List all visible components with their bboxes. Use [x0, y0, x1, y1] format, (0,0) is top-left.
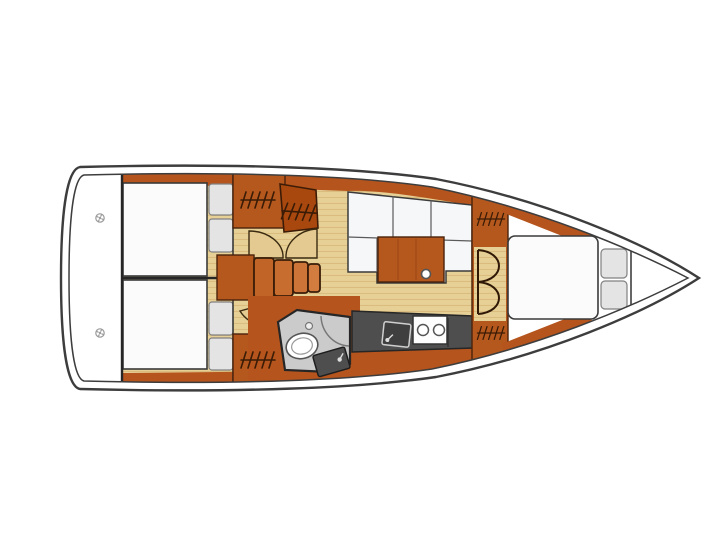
step: [254, 258, 274, 298]
aft-berth-top: [123, 183, 207, 276]
saloon-table: [378, 237, 444, 282]
saloon: [348, 192, 472, 283]
engine-box: [217, 255, 254, 300]
step: [293, 262, 308, 293]
pillow: [209, 184, 233, 215]
head-wet-room: [248, 296, 360, 388]
pillow: [601, 281, 627, 309]
stove-two-burner: [413, 316, 447, 344]
pillow: [601, 249, 627, 278]
pillow: [209, 338, 233, 370]
companionway-steps: [217, 255, 320, 300]
aft-berth-bottom: [123, 280, 207, 369]
pillow: [209, 219, 233, 252]
v-berth: [508, 236, 598, 319]
step: [308, 264, 320, 292]
cup-holder: [422, 270, 431, 279]
aft-locker-top: [233, 170, 285, 228]
flush-knob: [306, 323, 313, 330]
boat-floor-plan: [0, 0, 720, 540]
galley-sink: [382, 322, 411, 348]
step: [274, 260, 293, 296]
pillow: [209, 302, 233, 335]
boat-floor-plan-canvas: [0, 0, 720, 540]
